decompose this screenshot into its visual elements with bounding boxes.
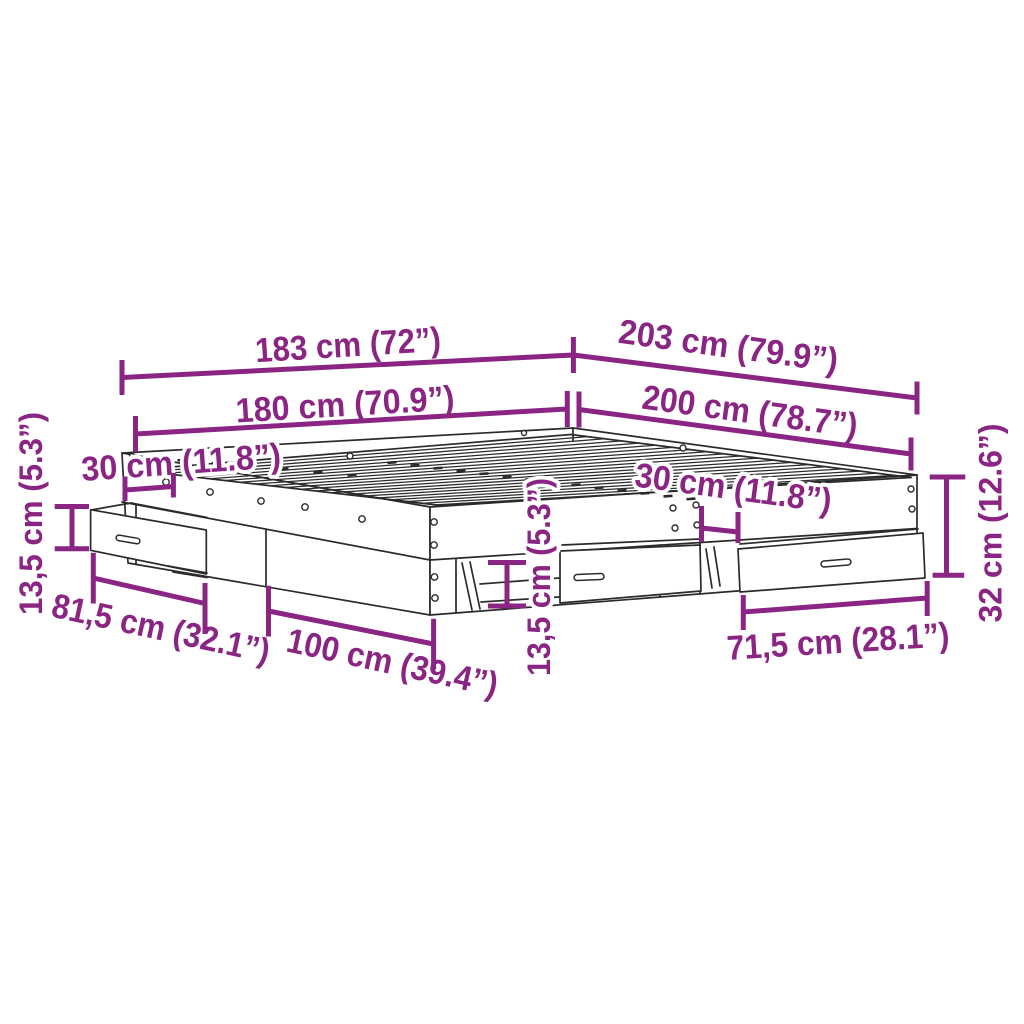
svg-text:32 cm (12.6”): 32 cm (12.6”) — [973, 424, 1009, 623]
svg-text:13,5 cm (5.3”): 13,5 cm (5.3”) — [521, 478, 557, 676]
svg-text:13,5 cm (5.3”): 13,5 cm (5.3”) — [13, 412, 49, 615]
